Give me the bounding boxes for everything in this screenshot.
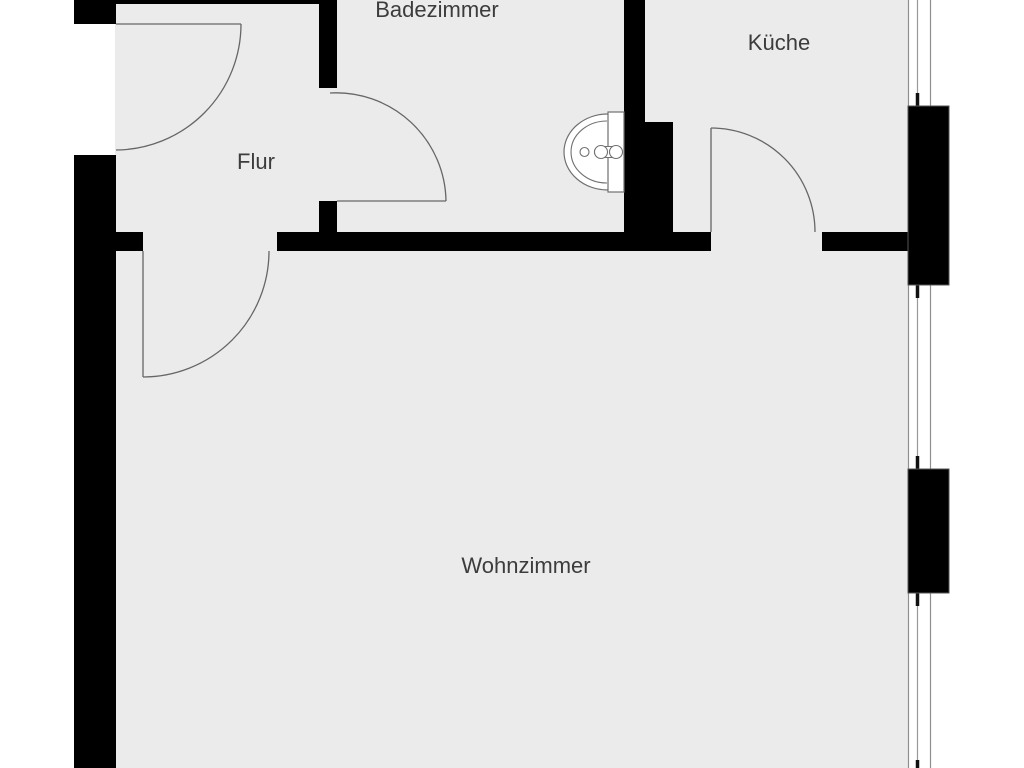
entry-jamb-block [74, 0, 116, 24]
floorplan-graphics [0, 0, 1024, 768]
center-dividing-wall [277, 232, 711, 251]
sink-faucet-circle-0 [595, 146, 608, 159]
left-outer-wall [74, 155, 116, 768]
hall-bathroom-wall-lower [319, 201, 337, 232]
floorplan-canvas: Badezimmer Küche Flur Wohnzimmer [0, 0, 1024, 768]
sink-faucet-circle-1 [610, 146, 623, 159]
kitchen-living-wall-right [822, 232, 908, 251]
top-outer-wall [116, 0, 319, 4]
room-label-kueche: Küche [748, 32, 810, 54]
hall-living-wall-stub [116, 232, 143, 251]
bathroom-kitchen-wall [624, 0, 645, 232]
bathroom-kitchen-duct-block [645, 122, 673, 232]
window-pier-lower [908, 469, 949, 593]
floor-area [115, 0, 908, 768]
room-label-badezimmer: Badezimmer [375, 0, 498, 21]
sink-drain-knob [580, 148, 589, 157]
room-label-flur: Flur [237, 151, 275, 173]
hall-bathroom-wall-upper [319, 0, 337, 88]
window-pier-upper [908, 106, 949, 285]
room-label-wohnzimmer: Wohnzimmer [461, 555, 590, 577]
